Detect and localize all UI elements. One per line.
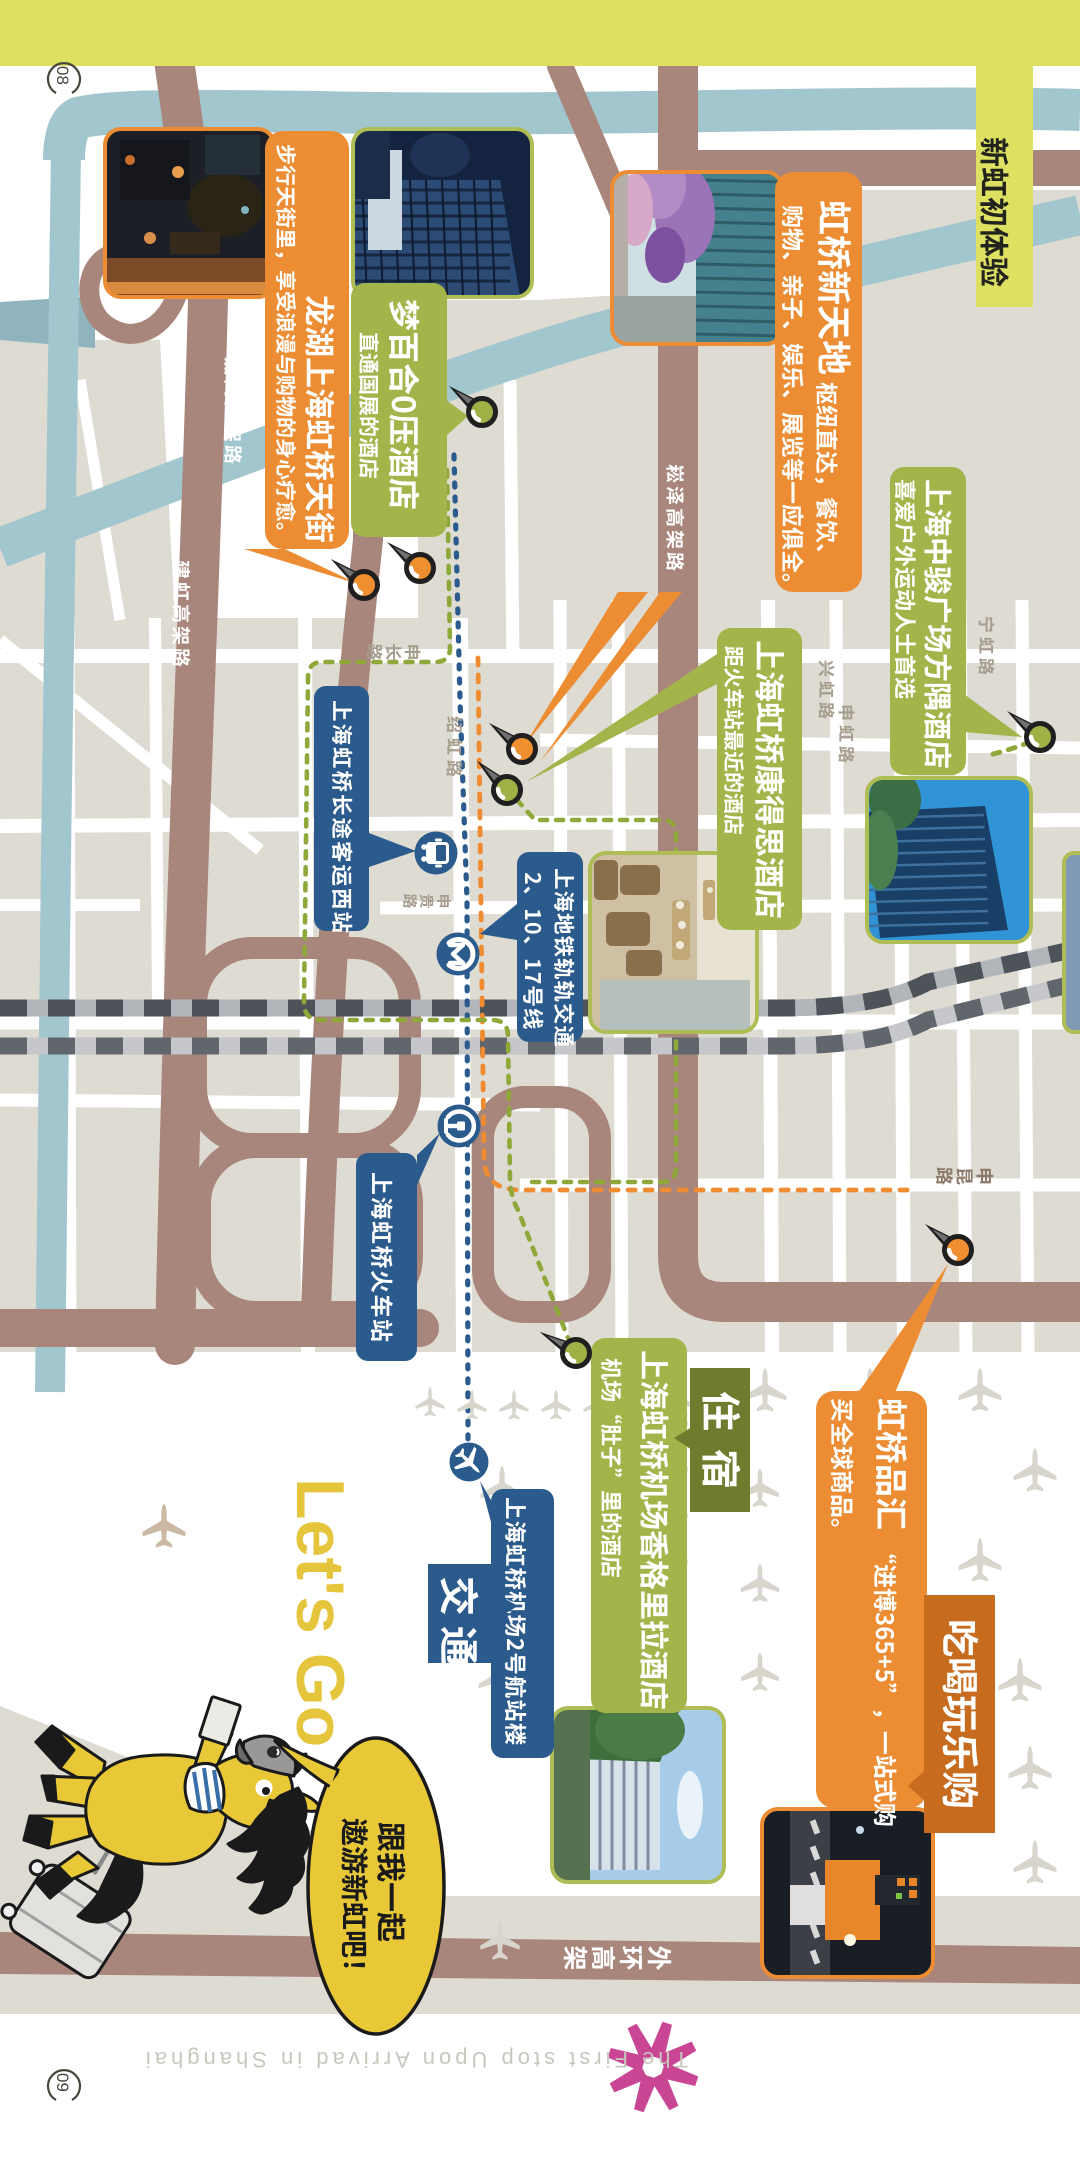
svg-text:08: 08	[53, 66, 72, 85]
svg-text:Let's Go: Let's Go	[282, 1478, 358, 1747]
svg-text:The First stop Upon Arrivad in: The First stop Upon Arrivad in Shanghai	[142, 2047, 688, 2072]
svg-text:09: 09	[53, 2073, 72, 2092]
